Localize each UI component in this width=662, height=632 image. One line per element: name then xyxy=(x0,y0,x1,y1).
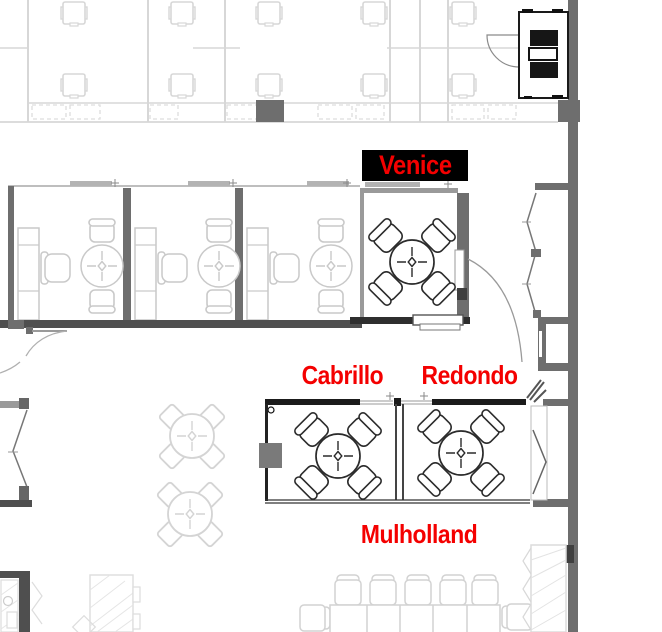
angled-door xyxy=(527,380,546,402)
floor-plan-drawing xyxy=(0,0,662,632)
redondo-table xyxy=(416,408,506,498)
office-row xyxy=(0,179,362,373)
corridor-doors xyxy=(522,193,568,402)
sink-icon xyxy=(4,597,13,606)
redondo-room[interactable] xyxy=(416,408,506,498)
room-label-mulholland-text: Mulholland xyxy=(361,521,477,547)
left-door-assembly xyxy=(0,398,32,507)
floor-plan-canvas: Venice Cabrillo Redondo Mulholland xyxy=(0,0,662,632)
office-unit-3 xyxy=(247,219,352,320)
office-unit-1 xyxy=(18,219,123,320)
cabrillo-room[interactable] xyxy=(293,411,383,501)
casual-seating xyxy=(157,404,226,548)
cabrillo-table xyxy=(293,411,383,501)
sliding-door xyxy=(307,181,349,186)
door-jamb xyxy=(455,250,464,290)
equipment-block xyxy=(530,62,558,78)
room-label-cabrillo[interactable]: Cabrillo xyxy=(284,362,400,388)
door-swing-arc xyxy=(468,259,522,362)
room-label-cabrillo-text: Cabrillo xyxy=(301,362,383,388)
room-label-venice[interactable]: Venice xyxy=(362,150,468,181)
cabrillo-redondo-block xyxy=(259,392,568,507)
mulholland-area[interactable] xyxy=(300,545,566,632)
wall-display xyxy=(259,443,282,468)
office-unit-2 xyxy=(135,219,240,320)
cabinet-doors xyxy=(32,582,42,624)
cubicle-area xyxy=(0,0,558,122)
venice-table xyxy=(367,217,457,307)
sliding-door xyxy=(70,181,112,186)
room-label-redondo-text: Redondo xyxy=(422,362,518,388)
room-label-venice-text: Venice xyxy=(379,152,452,179)
elevator-closet xyxy=(487,9,568,99)
venice-room[interactable] xyxy=(350,180,522,362)
room-label-redondo[interactable]: Redondo xyxy=(412,362,528,388)
kitchen-area xyxy=(0,571,140,632)
cubicle-dark-block xyxy=(256,100,284,122)
sliding-door xyxy=(188,181,230,186)
sliding-door xyxy=(365,182,420,187)
long-table xyxy=(330,605,500,632)
door-swing-arc xyxy=(0,331,67,373)
room-label-mulholland[interactable]: Mulholland xyxy=(351,521,487,547)
equipment-block xyxy=(530,30,558,46)
